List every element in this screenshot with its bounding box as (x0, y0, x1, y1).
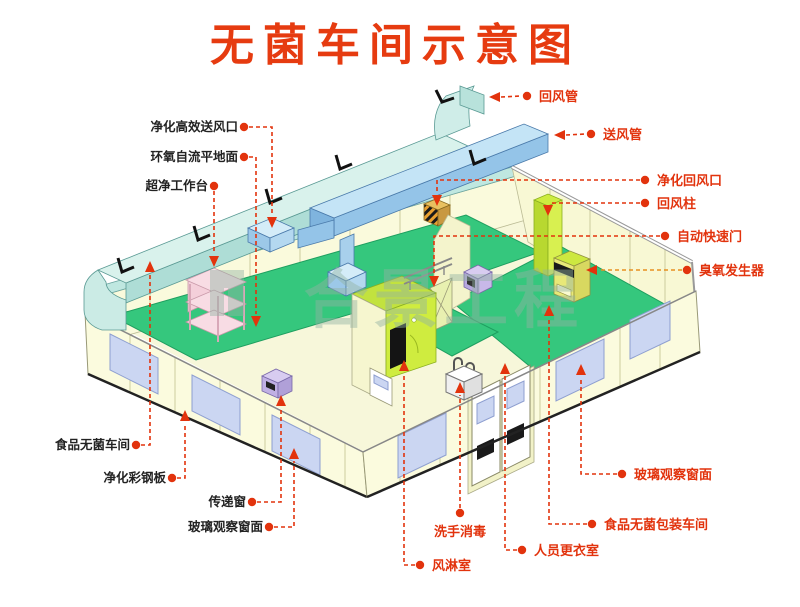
label-ozone-generator: 臭氧发生器 (699, 263, 765, 278)
cleanroom-schematic: 合景工程 净化高效送风口 环氧自流平地面 超净工作台 食品无菌车间 净化彩钢板 … (0, 0, 800, 607)
label-food-sterile-packaging-workshop: 食品无菌包装车间 (604, 517, 708, 532)
label-return-duct: 回风管 (539, 89, 578, 104)
watermark-text: 合景工程 (304, 264, 584, 336)
label-return-air-column: 回风柱 (657, 196, 696, 211)
label-automatic-quick-door: 自动快速门 (677, 229, 742, 244)
label-air-shower-room: 风淋室 (432, 558, 471, 573)
label-glass-window-left: 玻璃观察窗面 (188, 519, 264, 534)
label-purification-return-vent: 净化回风口 (657, 173, 722, 188)
label-personnel-changing-room: 人员更衣室 (534, 543, 599, 558)
label-transfer-window: 传递窗 (207, 494, 246, 509)
label-purification-steel-panel: 净化彩钢板 (103, 470, 166, 485)
label-food-sterile-workshop: 食品无菌车间 (54, 437, 130, 452)
diagram-canvas: 合景工程 净化高效送风口 环氧自流平地面 超净工作台 食品无菌车间 净化彩钢板 … (0, 0, 800, 607)
label-clean-workbench: 超净工作台 (144, 178, 208, 193)
page-title: 无菌车间示意图 (210, 21, 581, 70)
label-epoxy-floor: 环氧自流平地面 (150, 149, 238, 164)
label-hepa-supply-vent: 净化高效送风口 (150, 119, 238, 134)
label-hand-wash-disinfection: 洗手消毒 (434, 524, 486, 539)
label-glass-window-right: 玻璃观察窗面 (634, 467, 712, 482)
label-supply-duct: 送风管 (602, 127, 642, 142)
